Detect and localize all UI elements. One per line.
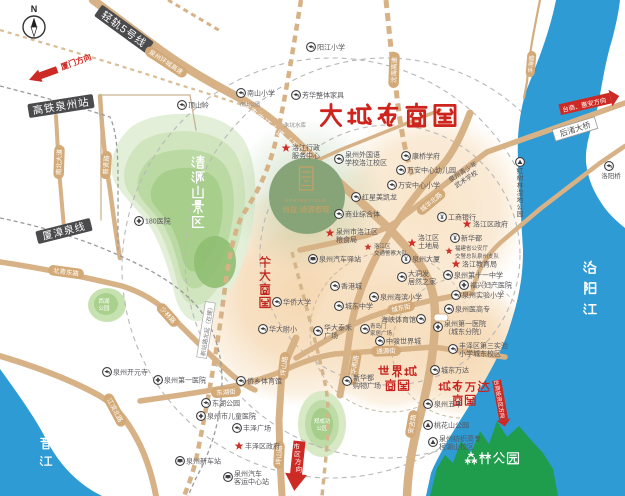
svg-text:芳华整体家具: 芳华整体家具 xyxy=(302,91,344,100)
svg-text:青岛门: 青岛门 xyxy=(370,322,387,330)
svg-text:洛阳桥: 洛阳桥 xyxy=(601,171,621,180)
svg-text:180医院: 180医院 xyxy=(145,217,171,226)
svg-text:顶山岭: 顶山岭 xyxy=(188,101,209,110)
svg-text:购物广场: 购物广场 xyxy=(353,381,381,390)
svg-text:丰泽区政府: 丰泽区政府 xyxy=(245,442,280,451)
svg-text:大洞发: 大洞发 xyxy=(408,269,429,278)
svg-text:泉州大厦: 泉州大厦 xyxy=(412,255,440,264)
svg-text:泉州开元寺: 泉州开元寺 xyxy=(113,368,148,377)
svg-text:泉州新车站: 泉州新车站 xyxy=(186,457,221,466)
svg-text:泉州第一医院: 泉州第一医院 xyxy=(164,376,206,385)
svg-text:湿: 湿 xyxy=(517,188,524,197)
svg-text:居然之家: 居然之家 xyxy=(408,277,436,286)
svg-text:洛江区: 洛江区 xyxy=(374,242,391,250)
svg-text:公园: 公园 xyxy=(98,305,110,312)
svg-text:丰泽区第三实验: 丰泽区第三实验 xyxy=(459,341,508,350)
svg-text:地: 地 xyxy=(517,195,524,204)
svg-text:N: N xyxy=(31,4,38,14)
svg-text:华大附小: 华大附小 xyxy=(269,325,297,334)
svg-text:中骏世界城: 中骏世界城 xyxy=(386,337,421,346)
svg-text:城东中学: 城东中学 xyxy=(345,302,373,311)
svg-text:西湖: 西湖 xyxy=(98,297,110,305)
svg-text:东湖公园: 东湖公园 xyxy=(212,399,240,408)
svg-text:泉州海滨小学: 泉州海滨小学 xyxy=(380,293,422,302)
svg-text:洛江区: 洛江区 xyxy=(418,233,439,242)
svg-text:泉州汽车驿站: 泉州汽车驿站 xyxy=(319,255,361,264)
svg-text:家居广场: 家居广场 xyxy=(370,329,393,337)
svg-text:红: 红 xyxy=(517,166,524,175)
svg-text:小学城东校区: 小学城东校区 xyxy=(459,349,501,358)
svg-text:华侨大学: 华侨大学 xyxy=(283,298,311,307)
svg-text:服务中心: 服务中心 xyxy=(292,151,320,160)
svg-text:工商银行: 工商银行 xyxy=(448,213,476,222)
svg-text:康桥学府: 康桥学府 xyxy=(412,152,440,161)
svg-text:柯湖山校区: 柯湖山校区 xyxy=(439,442,474,451)
svg-text:泉州市洛江区: 泉州市洛江区 xyxy=(336,227,378,236)
svg-text:新华都: 新华都 xyxy=(461,234,482,243)
svg-text:香港城: 香港城 xyxy=(341,282,362,291)
svg-text:泉州纺织高专: 泉州纺织高专 xyxy=(439,434,481,443)
svg-text:洛江行政: 洛江行政 xyxy=(292,143,320,152)
svg-text:洛江区政府: 洛江区政府 xyxy=(473,220,508,229)
svg-text:区: 区 xyxy=(294,450,302,459)
svg-text:客运中心站: 客运中心站 xyxy=(234,477,269,486)
svg-text:广场: 广场 xyxy=(324,331,338,340)
svg-text:泉州实验小学: 泉州实验小学 xyxy=(462,291,504,300)
svg-text:万安中心幼儿园: 万安中心幼儿园 xyxy=(407,166,456,175)
svg-text:南山小学: 南山小学 xyxy=(247,89,275,98)
svg-text:万安中心小学: 万安中心小学 xyxy=(398,181,440,190)
svg-text:福建省公安厅: 福建省公安厅 xyxy=(455,244,489,252)
svg-text:阳江小学: 阳江小学 xyxy=(317,43,345,52)
svg-text:福兴妇产医院: 福兴妇产医院 xyxy=(470,281,512,290)
svg-text:林: 林 xyxy=(517,180,524,189)
svg-text:丰泽广场: 丰泽广场 xyxy=(243,424,271,433)
svg-text:（城东分院）: （城东分院） xyxy=(444,327,486,336)
svg-text:洛江教育局: 洛江教育局 xyxy=(462,260,497,269)
svg-text:泉州第十一中学: 泉州第十一中学 xyxy=(454,271,503,280)
svg-text:商业综合体: 商业综合体 xyxy=(345,210,380,219)
svg-text:红星美凯龙: 红星美凯龙 xyxy=(362,193,397,202)
svg-text:泉州市儿童医院: 泉州市儿童医院 xyxy=(207,412,256,421)
svg-text:土地局: 土地局 xyxy=(418,241,439,250)
svg-text:SPRINGFIELD: SPRINGFIELD xyxy=(285,198,326,203)
svg-text:朱坑水库: 朱坑水库 xyxy=(284,121,307,129)
svg-text:尚益·清源春晓: 尚益·清源春晓 xyxy=(282,204,330,214)
svg-text:泉州第一医院: 泉州第一医院 xyxy=(444,319,486,328)
svg-text:桃花山公园: 桃花山公园 xyxy=(434,421,469,430)
svg-text:学校洛江校区: 学校洛江校区 xyxy=(345,158,387,167)
svg-text:泉州外国语: 泉州外国语 xyxy=(345,150,380,159)
svg-text:新华都: 新华都 xyxy=(353,373,374,382)
svg-text:侨乡体育馆: 侨乡体育馆 xyxy=(247,377,282,386)
svg-text:南山公园: 南山公园 xyxy=(240,101,260,108)
svg-text:园: 园 xyxy=(517,210,524,218)
svg-text:交警总队泉州支队: 交警总队泉州支队 xyxy=(455,252,500,260)
svg-text:泉州五中: 泉州五中 xyxy=(434,400,462,409)
svg-text:粮食局: 粮食局 xyxy=(336,235,357,244)
svg-text:公: 公 xyxy=(517,204,524,211)
svg-text:树: 树 xyxy=(517,173,524,182)
svg-text:海峡体育馆: 海峡体育馆 xyxy=(381,315,416,324)
svg-text:泉州医高专: 泉州医高专 xyxy=(455,305,490,314)
svg-text:泉州汽车: 泉州汽车 xyxy=(234,469,262,478)
svg-text:华大泰禾: 华大泰禾 xyxy=(324,323,352,332)
svg-text:城东万达: 城东万达 xyxy=(441,366,469,375)
